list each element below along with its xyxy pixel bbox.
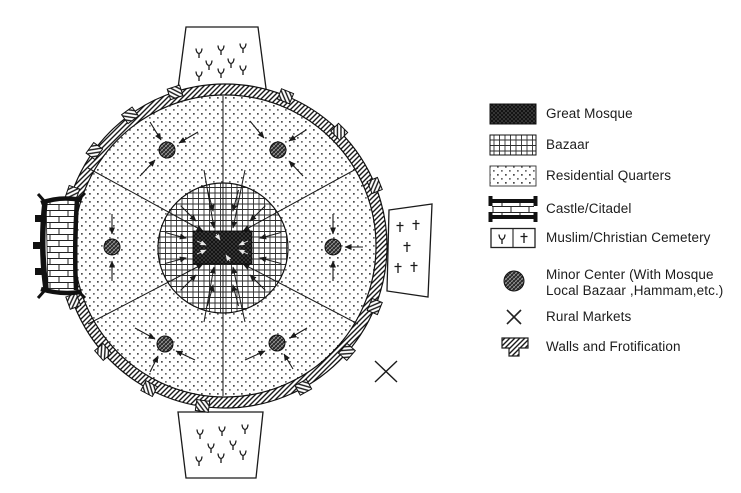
cemetery-icon (488, 227, 538, 249)
rural-market-x (375, 361, 397, 382)
great-mosque-swatch (488, 103, 538, 125)
minor-center (104, 239, 120, 255)
legend-item-great-mosque: Great Mosque (488, 103, 633, 125)
castle-citadel-icon (488, 194, 538, 224)
minor-center (270, 142, 286, 158)
legend-label-bazaar: Bazaar (546, 134, 589, 156)
legend-label-great-mosque: Great Mosque (546, 103, 633, 125)
legend-label-cemetery: Muslim/Christian Cemetery (546, 227, 711, 249)
legend-item-residential: Residential Quarters (488, 165, 671, 187)
minor-center (269, 335, 285, 351)
islamic-city-model-figure: { "legend": { "items": [ { "id": "great-… (0, 0, 741, 493)
legend-item-minor-center: Minor Center (With Mosque Local Bazaar ,… (488, 265, 723, 299)
legend-label-minor-center-line1: Minor Center (With Mosque (546, 267, 723, 283)
legend-item-rural-markets: Rural Markets (488, 306, 631, 328)
minor-center (157, 336, 173, 352)
legend-label-minor-center-line2: Local Bazaar ,Hammam,etc.) (546, 283, 723, 299)
legend-label-castle: Castle/Citadel (546, 194, 631, 224)
great-mosque (193, 231, 252, 264)
legend-label-walls: Walls and Frotification (546, 335, 681, 359)
legend-label-residential: Residential Quarters (546, 165, 671, 187)
legend-item-bazaar: Bazaar (488, 134, 589, 156)
legend-label-rural-markets: Rural Markets (546, 306, 631, 328)
cemetery-east-christian (387, 204, 432, 297)
walls-icon (488, 335, 538, 359)
legend-item-cemetery: Muslim/Christian Cemetery (488, 227, 711, 249)
cemetery-south-muslim (178, 412, 263, 478)
minor-center-icon (488, 265, 538, 295)
castle-citadel (33, 193, 85, 298)
bazaar-swatch (488, 134, 538, 156)
minor-center (325, 239, 341, 255)
legend-label-minor-center: Minor Center (With Mosque Local Bazaar ,… (546, 267, 723, 299)
minor-center (159, 142, 175, 158)
residential-swatch (488, 165, 538, 187)
legend-item-walls: Walls and Frotification (488, 335, 681, 359)
rural-markets-icon (488, 306, 538, 328)
legend-item-castle: Castle/Citadel (488, 194, 631, 224)
